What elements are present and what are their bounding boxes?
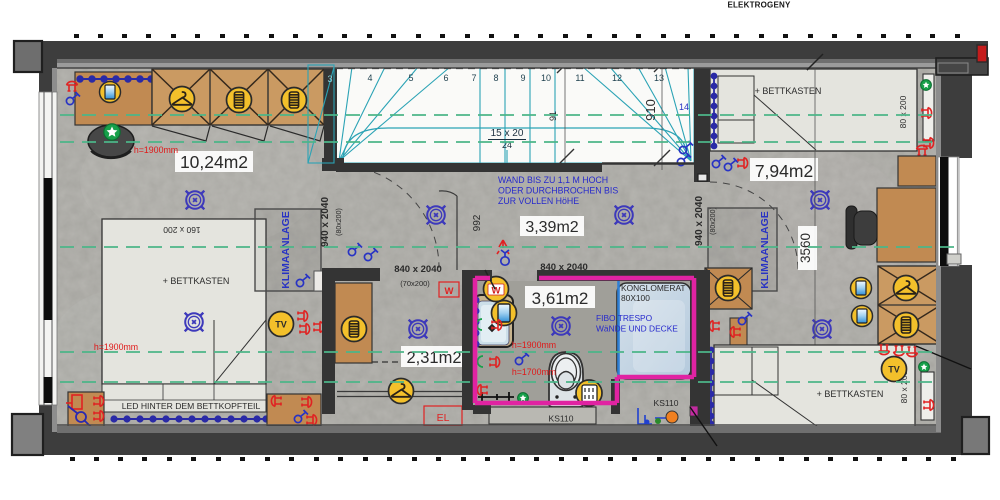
svg-text:9: 9 <box>520 73 525 83</box>
svg-text:KS110: KS110 <box>654 398 679 408</box>
svg-text:91: 91 <box>548 111 558 121</box>
svg-text:10: 10 <box>541 73 551 83</box>
svg-text:KLIMAANLAGE: KLIMAANLAGE <box>759 211 771 289</box>
svg-text:+ BETTKASTEN: + BETTKASTEN <box>163 276 230 286</box>
svg-text:+ BETTKASTEN: + BETTKASTEN <box>755 86 822 96</box>
svg-text:6: 6 <box>443 73 448 83</box>
svg-text:13: 13 <box>654 73 664 83</box>
svg-text:940 x 2040: 940 x 2040 <box>694 196 705 246</box>
svg-text:TV: TV <box>888 365 900 375</box>
svg-text:KONGLOMERAT: KONGLOMERAT <box>621 283 686 293</box>
svg-text:h=1700mm: h=1700mm <box>512 367 556 377</box>
svg-text:7: 7 <box>471 73 476 83</box>
svg-text:7,94m2: 7,94m2 <box>755 161 813 181</box>
svg-text:8: 8 <box>493 73 498 83</box>
svg-text:h=1900mm: h=1900mm <box>512 340 556 350</box>
svg-text:15 x 20: 15 x 20 <box>491 128 524 139</box>
svg-text:12: 12 <box>612 73 622 83</box>
svg-text:ODER DURCHBROCHEN BIS: ODER DURCHBROCHEN BIS <box>498 186 618 196</box>
svg-text:3: 3 <box>327 74 332 84</box>
svg-text:W: W <box>445 286 454 297</box>
svg-text:940 x 2040: 940 x 2040 <box>320 197 331 247</box>
svg-text:(70x200): (70x200) <box>400 279 430 288</box>
svg-text:3,61m2: 3,61m2 <box>532 289 589 308</box>
svg-text:LED HINTER DEM BETTKOPFTEIL: LED HINTER DEM BETTKOPFTEIL <box>122 401 261 411</box>
svg-text:3560: 3560 <box>798 233 813 263</box>
svg-text:3,39m2: 3,39m2 <box>525 219 578 236</box>
svg-text:80 x 200: 80 x 200 <box>898 95 908 128</box>
svg-text:14: 14 <box>679 102 689 112</box>
svg-text:WäNDE UND DECKE: WäNDE UND DECKE <box>596 324 678 334</box>
svg-text:10,24m2: 10,24m2 <box>180 152 248 172</box>
svg-text:992: 992 <box>472 214 483 231</box>
svg-text:ZUR VOLLEN HöHE: ZUR VOLLEN HöHE <box>498 196 579 206</box>
svg-text:W: W <box>492 286 501 297</box>
svg-text:WAND BIS ZU 1,1 M HOCH: WAND BIS ZU 1,1 M HOCH <box>498 175 608 185</box>
svg-text:ELEKTROGENY: ELEKTROGENY <box>727 1 791 10</box>
svg-text:h=1900mm: h=1900mm <box>94 342 138 352</box>
svg-text:840 x 2040: 840 x 2040 <box>394 264 442 275</box>
svg-text:FIBO TRESPO: FIBO TRESPO <box>596 313 653 323</box>
svg-text:5: 5 <box>408 73 413 83</box>
svg-text:+ BETTKASTEN: + BETTKASTEN <box>817 389 884 399</box>
svg-text:(80x200): (80x200) <box>336 208 343 236</box>
svg-text:160 x 200: 160 x 200 <box>163 225 201 235</box>
svg-text:80X100: 80X100 <box>621 293 650 303</box>
svg-text:910: 910 <box>643 99 658 121</box>
svg-text:KS110: KS110 <box>549 414 574 424</box>
svg-text:11: 11 <box>575 73 584 83</box>
svg-text:TV: TV <box>275 320 287 330</box>
svg-text:h=1900mm: h=1900mm <box>134 145 178 155</box>
svg-text:EL: EL <box>437 412 450 424</box>
svg-text:4: 4 <box>367 73 372 83</box>
svg-text:KLIMAANLAGE: KLIMAANLAGE <box>280 211 292 289</box>
